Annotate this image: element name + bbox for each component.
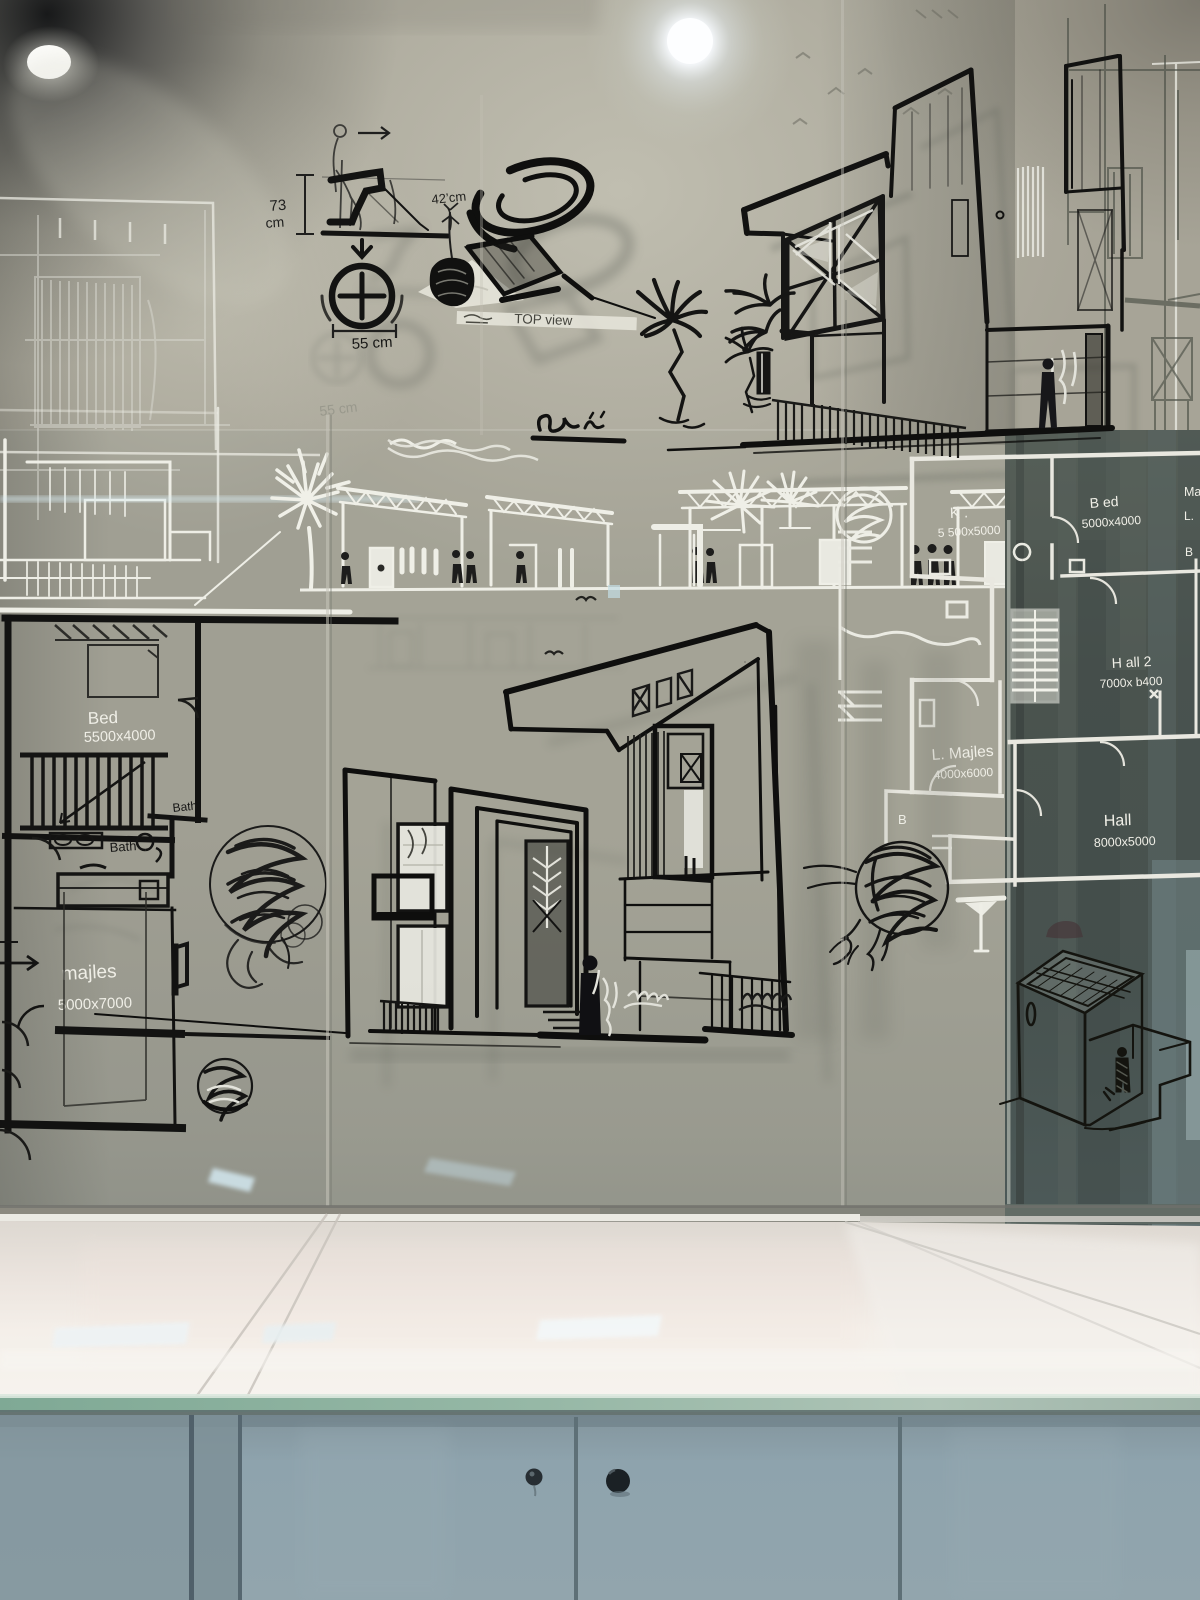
svg-text:majles: majles [61, 961, 117, 985]
svg-text:5000x7000: 5000x7000 [58, 994, 133, 1014]
svg-text:B: B [898, 812, 907, 827]
svg-text:H all 2: H all 2 [1111, 653, 1152, 671]
svg-text:73: 73 [269, 197, 287, 215]
svg-text:Bed: Bed [87, 708, 118, 728]
svg-text:Ma: Ma [1184, 485, 1200, 499]
svg-text:cm: cm [265, 214, 285, 231]
svg-text:5500x4000: 5500x4000 [84, 728, 156, 746]
svg-text:55 cm: 55 cm [351, 334, 393, 353]
svg-text:TOP view: TOP view [514, 311, 573, 328]
svg-text:Bath: Bath [109, 838, 137, 855]
svg-text:Bath: Bath [172, 798, 198, 815]
svg-text:L.: L. [1184, 509, 1194, 523]
svg-text:Hall: Hall [1104, 812, 1132, 830]
svg-text:8000x5000: 8000x5000 [1094, 834, 1156, 850]
svg-text:B ed: B ed [1089, 493, 1119, 511]
svg-text:B: B [1185, 545, 1193, 559]
svg-text:K .: K . [950, 504, 969, 522]
